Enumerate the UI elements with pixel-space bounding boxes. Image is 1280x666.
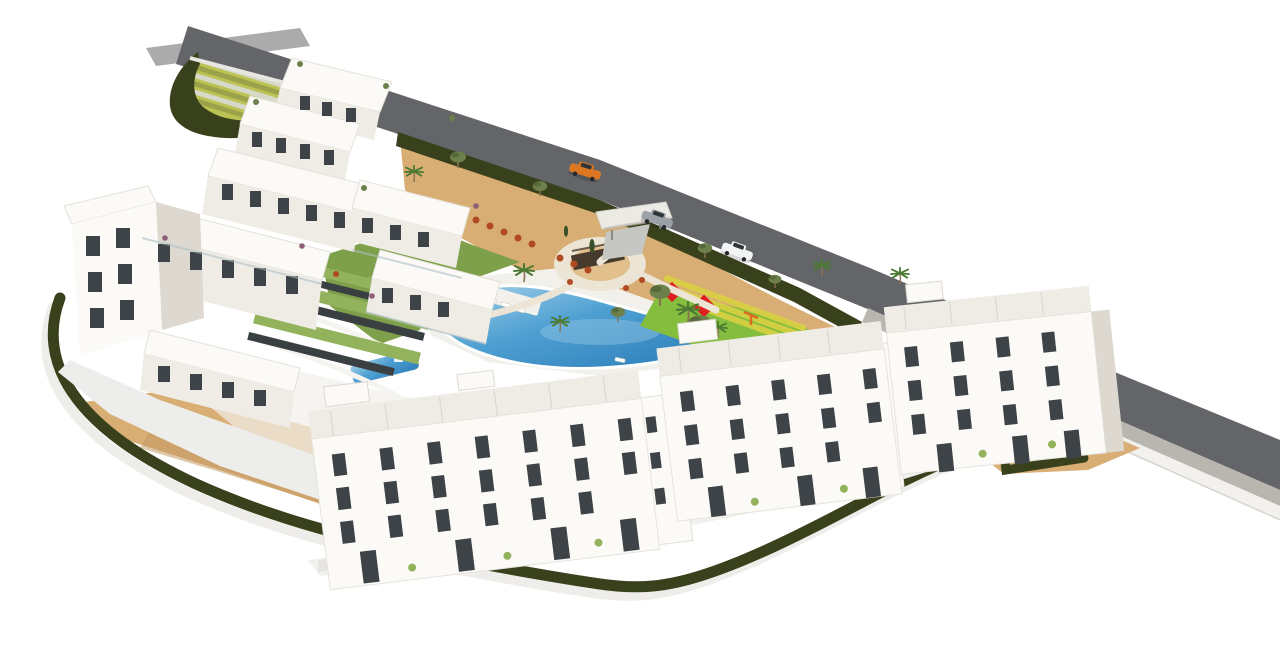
- block-c-roof-box: [906, 281, 944, 303]
- apartment-block-a: [306, 349, 660, 590]
- cypress-tree: [564, 226, 568, 237]
- render-canvas: [0, 0, 1280, 666]
- block-b-roof-box: [678, 319, 718, 343]
- architectural-render: [0, 0, 1280, 666]
- cypress-tree: [589, 239, 594, 253]
- apartment-block-c: [882, 264, 1125, 476]
